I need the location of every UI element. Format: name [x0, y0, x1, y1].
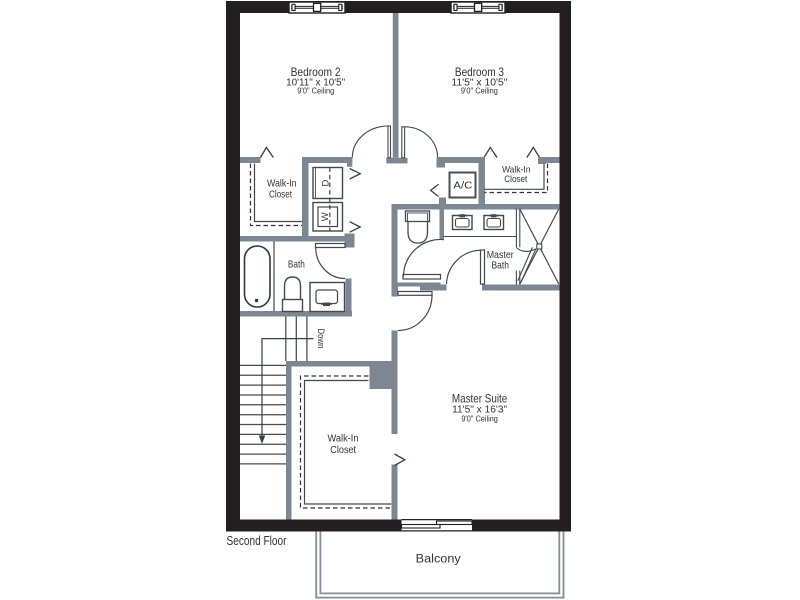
svg-text:Closet: Closet	[269, 190, 292, 201]
svg-text:9'0" Ceiling: 9'0" Ceiling	[297, 86, 334, 96]
svg-text:Down: Down	[315, 329, 326, 349]
svg-text:A/C: A/C	[453, 180, 472, 191]
svg-text:Closet: Closet	[504, 174, 527, 185]
svg-text:W: W	[320, 212, 331, 221]
svg-text:Master Suite: Master Suite	[452, 392, 508, 406]
svg-text:Walk-In: Walk-In	[328, 434, 359, 445]
svg-text:D: D	[321, 179, 332, 186]
svg-text:Second Floor: Second Floor	[227, 533, 288, 548]
svg-text:Bath: Bath	[491, 260, 509, 271]
svg-text:9'0" Ceiling: 9'0" Ceiling	[461, 86, 498, 96]
svg-text:Closet: Closet	[330, 445, 356, 456]
svg-text:Bath: Bath	[288, 258, 305, 270]
svg-text:Balcony: Balcony	[416, 554, 461, 566]
svg-text:Walk-In: Walk-In	[267, 179, 297, 190]
svg-text:9'0" Ceiling: 9'0" Ceiling	[461, 413, 498, 423]
